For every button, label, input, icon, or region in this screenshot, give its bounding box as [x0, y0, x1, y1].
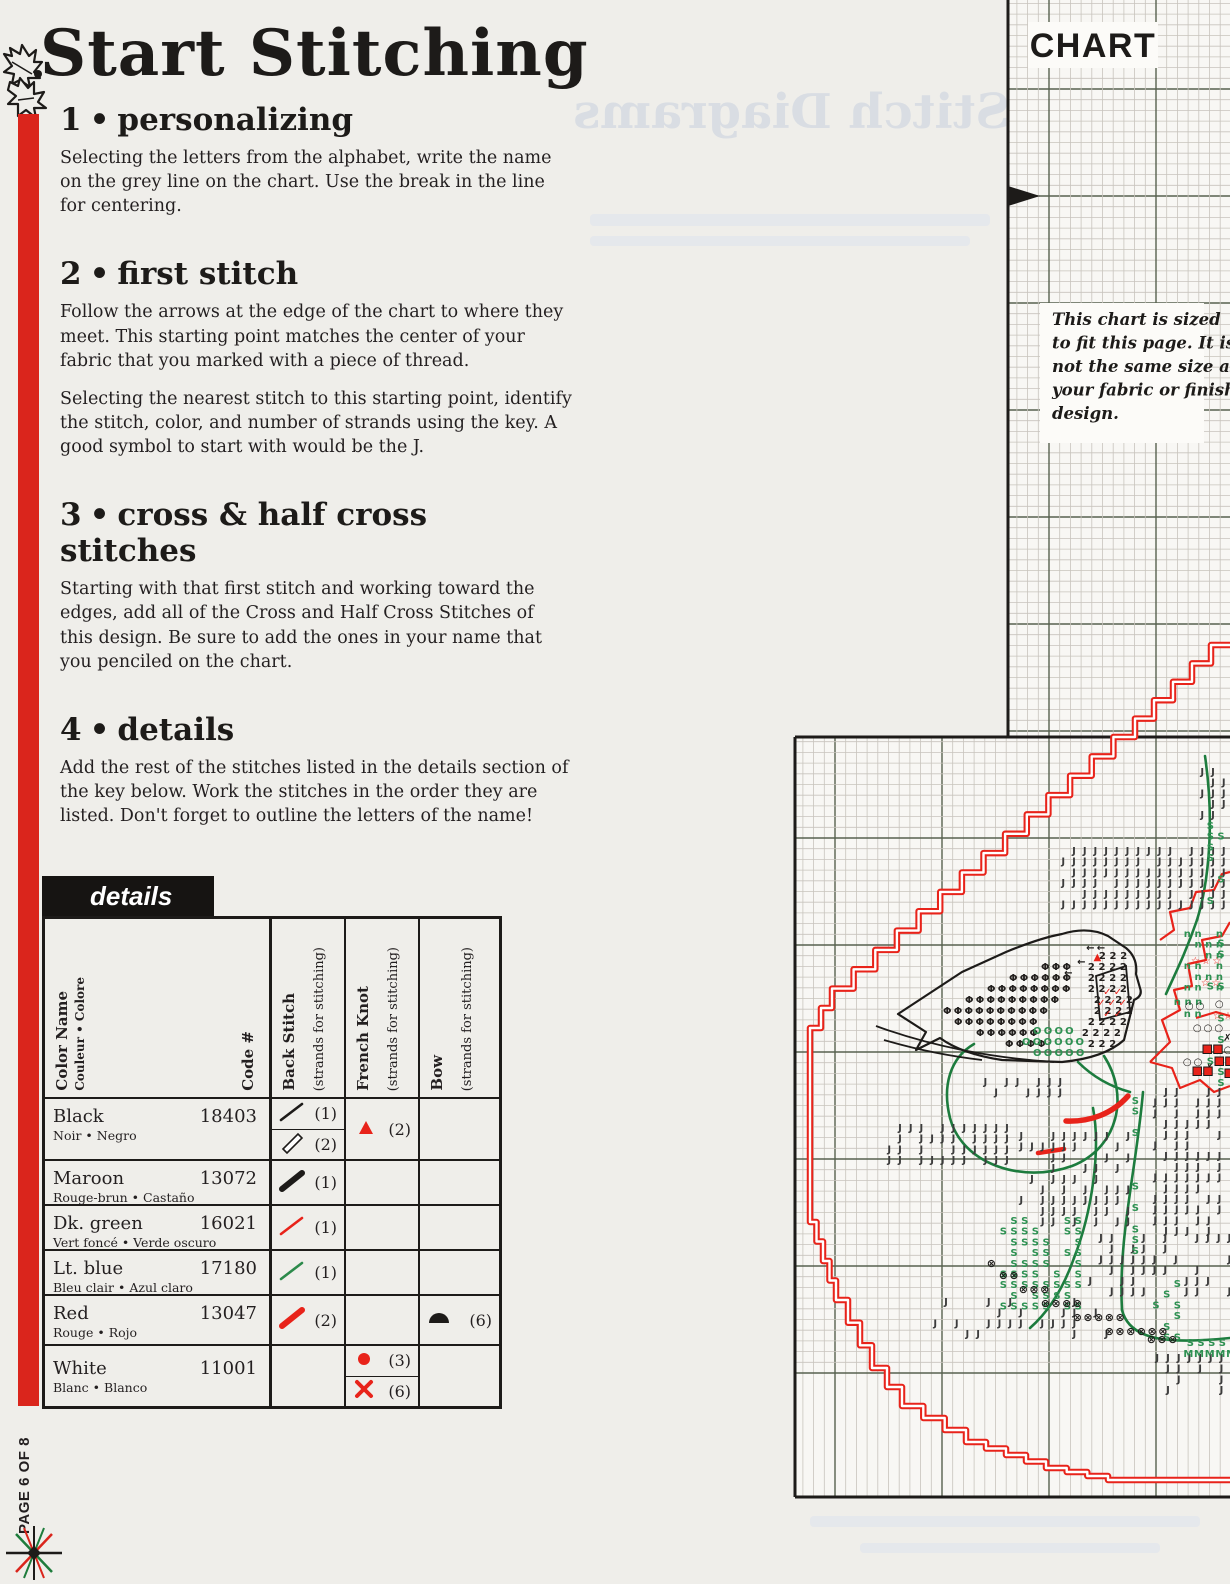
- svg-text:J: J: [1125, 857, 1130, 868]
- svg-text:J: J: [1185, 1130, 1190, 1141]
- svg-text:S: S: [1152, 1300, 1159, 1311]
- table-row-white: WhiteBlanc • Blanco11001 (3) (6): [45, 1344, 499, 1406]
- svg-text:J: J: [1114, 846, 1119, 857]
- svg-text:J: J: [1103, 900, 1108, 911]
- svg-text:S: S: [1132, 1128, 1139, 1139]
- svg-text:S: S: [1075, 1216, 1082, 1227]
- svg-text:J: J: [1167, 878, 1172, 889]
- svg-text:J: J: [1072, 1131, 1077, 1142]
- svg-text:Φ: Φ: [1019, 995, 1028, 1006]
- svg-text:J: J: [1146, 867, 1151, 878]
- svg-text:J: J: [1083, 1185, 1088, 1196]
- svg-text:J: J: [1194, 1276, 1199, 1287]
- svg-text:S: S: [1010, 1227, 1017, 1238]
- svg-text:Φ: Φ: [997, 1006, 1006, 1017]
- svg-text:J: J: [1217, 1130, 1222, 1141]
- svg-text:J: J: [1157, 867, 1162, 878]
- svg-text:○: ○: [1193, 1023, 1202, 1034]
- svg-text:☆: ☆: [1201, 978, 1210, 989]
- svg-text:J: J: [1206, 1173, 1211, 1184]
- svg-text:S: S: [1207, 832, 1214, 843]
- svg-text:✓: ✓: [1103, 1009, 1111, 1020]
- svg-text:J: J: [1195, 1162, 1200, 1173]
- svg-text:J: J: [1185, 1119, 1190, 1130]
- svg-text:J: J: [1060, 878, 1065, 889]
- svg-text:J: J: [961, 1155, 966, 1166]
- svg-text:J: J: [1047, 1077, 1052, 1088]
- svg-text:○: ○: [1185, 1001, 1194, 1012]
- svg-text:J: J: [1174, 1183, 1179, 1194]
- svg-text:J: J: [975, 1329, 980, 1340]
- svg-text:J: J: [1165, 1364, 1170, 1375]
- section-paragraph: Add the rest of the stitches listed in t…: [60, 756, 572, 828]
- svg-text:J: J: [1040, 1142, 1045, 1153]
- table-header-row: Color Name Couleur • Colore Code # Back …: [45, 919, 499, 1097]
- svg-text:J: J: [1109, 1244, 1114, 1255]
- svg-text:J: J: [1057, 1077, 1062, 1088]
- svg-text:S: S: [1064, 1227, 1071, 1238]
- svg-text:J: J: [1120, 1254, 1125, 1265]
- header-strands: (strands for stitching): [460, 947, 475, 1091]
- svg-text:J: J: [1206, 1151, 1211, 1162]
- svg-text:J: J: [1221, 889, 1226, 900]
- svg-text:S: S: [1207, 896, 1214, 907]
- svg-text:J: J: [1135, 889, 1140, 900]
- svg-text:Φ: Φ: [1040, 995, 1049, 1006]
- svg-text:J: J: [1082, 900, 1087, 911]
- svg-text:⊗: ⊗: [1168, 1333, 1177, 1346]
- header-color-name: Color Name: [53, 991, 71, 1091]
- backstitch-symbol: [276, 1100, 308, 1128]
- svg-text:○: ○: [1196, 1001, 1205, 1012]
- svg-text:J: J: [954, 1318, 959, 1329]
- svg-text:J: J: [1125, 1217, 1130, 1228]
- svg-text:J: J: [1104, 1131, 1109, 1142]
- svg-text:J: J: [1205, 1233, 1210, 1244]
- svg-text:J: J: [1217, 1205, 1222, 1216]
- svg-text:J: J: [986, 1297, 991, 1308]
- svg-text:J: J: [1152, 1194, 1157, 1205]
- svg-text:J: J: [1051, 1217, 1056, 1228]
- svg-text:Φ: Φ: [1018, 1006, 1027, 1017]
- svg-text:J: J: [1221, 799, 1226, 810]
- svg-text:☆: ☆: [1212, 978, 1221, 989]
- svg-text:S: S: [1010, 1216, 1017, 1227]
- svg-text:J: J: [1189, 878, 1194, 889]
- svg-text:J: J: [1221, 857, 1226, 868]
- svg-text:J: J: [1227, 1254, 1230, 1265]
- svg-text:J: J: [1125, 900, 1130, 911]
- svg-text:⊗: ⊗: [1157, 1333, 1166, 1346]
- svg-text:J: J: [897, 1155, 902, 1166]
- svg-text:J: J: [1199, 810, 1204, 821]
- svg-text:S: S: [1132, 1235, 1139, 1246]
- svg-text:J: J: [1061, 1152, 1066, 1163]
- svg-text:⊗: ⊗: [1040, 1283, 1049, 1296]
- svg-text:2: 2: [1120, 973, 1127, 984]
- svg-text:S: S: [1010, 1248, 1017, 1259]
- instructions: 1•personalizing Selecting the letters fr…: [60, 102, 572, 858]
- svg-text:⊗: ⊗: [1073, 1297, 1082, 1310]
- backstitch-symbol: [276, 1130, 308, 1158]
- svg-text:J: J: [919, 1144, 924, 1155]
- svg-text:✓: ✓: [1108, 998, 1116, 1009]
- svg-text:J: J: [919, 1134, 924, 1145]
- svg-text:J: J: [1163, 1119, 1168, 1130]
- svg-text:J: J: [1185, 1194, 1190, 1205]
- svg-text:J: J: [1167, 857, 1172, 868]
- svg-text:O: O: [1043, 1037, 1052, 1048]
- svg-text:J: J: [1061, 1195, 1066, 1206]
- svg-text:☆: ☆: [1191, 956, 1200, 967]
- svg-text:Φ: Φ: [976, 1028, 985, 1039]
- svg-text:J: J: [1189, 846, 1194, 857]
- svg-text:J: J: [1093, 1163, 1098, 1174]
- svg-text:O: O: [1065, 1048, 1074, 1059]
- svg-text:J: J: [1163, 1173, 1168, 1184]
- svg-text:J: J: [1040, 1217, 1045, 1228]
- svg-text:J: J: [1217, 1173, 1222, 1184]
- svg-text:J: J: [1167, 900, 1172, 911]
- svg-text:J: J: [1135, 878, 1140, 889]
- svg-text:J: J: [1051, 1163, 1056, 1174]
- page-title: Start Stitching: [40, 16, 589, 91]
- svg-text:Φ: Φ: [1007, 1006, 1016, 1017]
- svg-text:J: J: [1061, 1142, 1066, 1153]
- svg-text:S: S: [1174, 1311, 1181, 1322]
- svg-text:J: J: [1004, 1123, 1009, 1134]
- svg-text:Φ: Φ: [1052, 973, 1061, 984]
- svg-text:Φ: Φ: [998, 984, 1007, 995]
- svg-text:Φ: Φ: [1041, 973, 1050, 984]
- backstitch-symbol: [276, 1259, 308, 1287]
- svg-text:J: J: [1221, 846, 1226, 857]
- svg-text:J: J: [1185, 1226, 1190, 1237]
- svg-text:O: O: [1033, 1026, 1042, 1037]
- svg-text:J: J: [1162, 1265, 1167, 1276]
- svg-text:J: J: [1185, 1151, 1190, 1162]
- svg-text:J: J: [1093, 1174, 1098, 1185]
- svg-text:←: ←: [1077, 957, 1085, 968]
- svg-text:J: J: [1200, 889, 1205, 900]
- svg-text:J: J: [1083, 1163, 1088, 1174]
- svg-text:J: J: [1051, 1174, 1056, 1185]
- svg-text:J: J: [1098, 1233, 1103, 1244]
- svg-text:S: S: [1021, 1302, 1028, 1313]
- svg-text:✓: ✓: [1103, 987, 1111, 998]
- svg-text:J: J: [1093, 1206, 1098, 1217]
- svg-text:S: S: [1021, 1227, 1028, 1238]
- svg-text:J: J: [1174, 1205, 1179, 1216]
- header-strands: (strands for stitching): [386, 947, 401, 1091]
- svg-text:J: J: [1115, 1195, 1120, 1206]
- svg-text:J: J: [961, 1144, 966, 1155]
- svg-text:J: J: [1082, 846, 1087, 857]
- svg-text:O: O: [1022, 1037, 1031, 1048]
- svg-text:2: 2: [1099, 973, 1106, 984]
- svg-text:J: J: [1178, 878, 1183, 889]
- svg-text:J: J: [908, 1123, 913, 1134]
- svg-text:J: J: [1185, 1173, 1190, 1184]
- svg-text:⊗: ⊗: [1062, 1297, 1071, 1310]
- svg-text:Φ: Φ: [1019, 984, 1028, 995]
- svg-text:○: ○: [1215, 999, 1224, 1010]
- svg-text:O: O: [1054, 1026, 1063, 1037]
- svg-text:Φ: Φ: [1008, 995, 1017, 1006]
- svg-text:J: J: [1098, 1254, 1103, 1265]
- svg-text:J: J: [1071, 900, 1076, 911]
- svg-text:n: n: [1184, 961, 1191, 972]
- svg-text:J: J: [1157, 846, 1162, 857]
- svg-text:J: J: [886, 1144, 891, 1155]
- svg-text:J: J: [1162, 1233, 1167, 1244]
- svg-text:J: J: [1114, 900, 1119, 911]
- svg-text:J: J: [1115, 1163, 1120, 1174]
- svg-text:J: J: [1083, 1131, 1088, 1142]
- svg-text:J: J: [1120, 1276, 1125, 1287]
- svg-text:☆: ☆: [1212, 956, 1221, 967]
- svg-text:J: J: [1185, 1162, 1190, 1173]
- svg-text:☆: ☆: [1213, 1011, 1222, 1022]
- svg-text:J: J: [1093, 857, 1098, 868]
- svg-text:J: J: [993, 1123, 998, 1134]
- svg-text:○: ○: [1224, 1045, 1230, 1056]
- svg-text:J: J: [1167, 889, 1172, 900]
- svg-text:▲: ▲: [1093, 952, 1101, 963]
- svg-text:J: J: [1176, 1364, 1181, 1375]
- svg-text:Φ: Φ: [975, 1006, 984, 1017]
- svg-text:J: J: [1072, 1329, 1077, 1340]
- svg-text:S: S: [1075, 1270, 1082, 1281]
- svg-text:Φ: Φ: [987, 1028, 996, 1039]
- svg-text:J: J: [1152, 1173, 1157, 1184]
- svg-text:Φ: Φ: [965, 995, 974, 1006]
- section-first-stitch: 2•first stitch Follow the arrows at the …: [60, 256, 572, 459]
- svg-text:S: S: [1217, 1078, 1224, 1089]
- svg-text:J: J: [1072, 1195, 1077, 1206]
- svg-text:⊗: ⊗: [987, 1257, 996, 1270]
- svg-text:J: J: [1146, 846, 1151, 857]
- svg-text:J: J: [1051, 1152, 1056, 1163]
- svg-text:J: J: [1125, 878, 1130, 889]
- table-row-dk-green: Dk. greenVert foncé • Verde oscuro16021 …: [45, 1204, 499, 1249]
- svg-text:J: J: [1154, 1353, 1159, 1364]
- accent-bar: [18, 114, 39, 1406]
- svg-text:O: O: [1076, 1037, 1085, 1048]
- svg-text:J: J: [1152, 1265, 1157, 1276]
- svg-text:J: J: [1060, 857, 1065, 868]
- svg-text:✓: ✓: [1097, 998, 1105, 1009]
- svg-text:J: J: [1103, 857, 1108, 868]
- svg-text:J: J: [1093, 900, 1098, 911]
- svg-text:J: J: [1163, 1215, 1168, 1226]
- svg-text:J: J: [1206, 1119, 1211, 1130]
- svg-text:Φ: Φ: [1051, 995, 1060, 1006]
- svg-text:2: 2: [1120, 962, 1127, 973]
- svg-text:S: S: [1075, 1237, 1082, 1248]
- svg-text:S: S: [1217, 875, 1224, 886]
- svg-text:J: J: [1115, 1142, 1120, 1153]
- svg-text:J: J: [1165, 1353, 1170, 1364]
- svg-text:J: J: [1104, 1152, 1109, 1163]
- svg-text:J: J: [1195, 1119, 1200, 1130]
- svg-text:J: J: [1125, 846, 1130, 857]
- svg-text:S: S: [1053, 1280, 1060, 1291]
- svg-text:J: J: [1057, 1088, 1062, 1099]
- svg-text:J: J: [1173, 1254, 1178, 1265]
- svg-text:J: J: [1130, 1287, 1135, 1298]
- svg-text:J: J: [1051, 1142, 1056, 1153]
- svg-text:J: J: [1165, 1385, 1170, 1396]
- svg-text:J: J: [1072, 1142, 1077, 1153]
- svg-text:⊗: ⊗: [1009, 1269, 1018, 1282]
- svg-text:Φ: Φ: [1009, 973, 1018, 984]
- svg-text:n: n: [1216, 929, 1223, 940]
- svg-text:J: J: [1141, 1287, 1146, 1298]
- svg-text:J: J: [1163, 1194, 1168, 1205]
- svg-text:J: J: [1015, 1077, 1020, 1088]
- svg-text:Φ: Φ: [986, 995, 995, 1006]
- svg-text:J: J: [1200, 900, 1205, 911]
- svg-text:M: M: [1215, 1349, 1225, 1360]
- svg-text:J: J: [1197, 1364, 1202, 1375]
- svg-text:J: J: [1210, 867, 1215, 878]
- svg-text:S: S: [1132, 1246, 1139, 1257]
- svg-text:J: J: [897, 1123, 902, 1134]
- svg-text:S: S: [1021, 1259, 1028, 1270]
- backstitch-symbol: [276, 1214, 308, 1242]
- svg-text:S: S: [1219, 1338, 1226, 1349]
- svg-text:☆: ☆: [1224, 1011, 1230, 1022]
- svg-text:J: J: [1174, 1162, 1179, 1173]
- svg-text:J: J: [1189, 900, 1194, 911]
- svg-text:J: J: [1125, 1206, 1130, 1217]
- svg-text:Φ: Φ: [975, 1017, 984, 1028]
- section-details: 4•details Add the rest of the stitches l…: [60, 712, 572, 828]
- svg-text:Φ: Φ: [1008, 1017, 1017, 1028]
- svg-text:J: J: [1189, 889, 1194, 900]
- svg-text:S: S: [1174, 1300, 1181, 1311]
- svg-text:S: S: [1032, 1227, 1039, 1238]
- svg-text:S: S: [1000, 1302, 1007, 1313]
- svg-text:S: S: [1021, 1216, 1028, 1227]
- svg-text:J: J: [1185, 1183, 1190, 1194]
- svg-text:2: 2: [1088, 1017, 1095, 1028]
- svg-text:J: J: [1115, 1185, 1120, 1196]
- section-heading: 4•details: [60, 712, 572, 748]
- svg-text:J: J: [1051, 1206, 1056, 1217]
- svg-text:J: J: [1071, 857, 1076, 868]
- svg-text:J: J: [1221, 900, 1226, 911]
- svg-text:J: J: [1195, 1183, 1200, 1194]
- svg-text:⊗: ⊗: [1019, 1283, 1028, 1296]
- svg-text:J: J: [1178, 900, 1183, 911]
- svg-text:J: J: [1219, 1374, 1224, 1385]
- svg-text:S: S: [1207, 842, 1214, 853]
- svg-text:M: M: [1194, 1349, 1204, 1360]
- svg-text:J: J: [1184, 1276, 1189, 1287]
- svg-text:J: J: [1093, 1195, 1098, 1206]
- page-indicator: PAGE 6 OF 8: [16, 1412, 40, 1534]
- svg-text:J: J: [1125, 889, 1130, 900]
- svg-text:J: J: [1093, 867, 1098, 878]
- svg-text:S: S: [1075, 1248, 1082, 1259]
- svg-text:J: J: [1206, 1087, 1211, 1098]
- svg-text:M: M: [1205, 1349, 1215, 1360]
- svg-text:J: J: [1157, 878, 1162, 889]
- svg-text:J: J: [951, 1123, 956, 1134]
- svg-text:J: J: [1004, 1155, 1009, 1166]
- svg-text:J: J: [1004, 1144, 1009, 1155]
- svg-text:2: 2: [1109, 962, 1116, 973]
- svg-text:S: S: [1032, 1248, 1039, 1259]
- svg-text:J: J: [1217, 1098, 1222, 1109]
- svg-text:J: J: [1174, 1130, 1179, 1141]
- svg-text:J: J: [932, 1318, 937, 1329]
- svg-text:J: J: [983, 1144, 988, 1155]
- svg-text:J: J: [1205, 1276, 1210, 1287]
- svg-text:S: S: [1132, 1203, 1139, 1214]
- svg-text:2: 2: [1110, 951, 1117, 962]
- svg-text:☆: ☆: [1202, 956, 1211, 967]
- section-paragraph: Selecting the letters from the alphabet,…: [60, 146, 572, 218]
- table-row-maroon: MaroonRouge-brun • Castaño13072 (1): [45, 1159, 499, 1204]
- svg-text:J: J: [1103, 889, 1108, 900]
- svg-text:J: J: [1152, 1254, 1157, 1265]
- section-cross-stitches: 3•cross & half cross stitches Starting w…: [60, 497, 572, 674]
- svg-text:J: J: [1061, 1318, 1066, 1329]
- svg-text:⊗: ⊗: [1115, 1311, 1124, 1324]
- svg-text:S: S: [1132, 1096, 1139, 1107]
- svg-text:J: J: [1125, 1185, 1130, 1196]
- svg-text:2: 2: [1109, 973, 1116, 984]
- svg-text:J: J: [1007, 1318, 1012, 1329]
- svg-text:J: J: [1109, 1287, 1114, 1298]
- svg-text:Φ: Φ: [965, 1017, 974, 1028]
- svg-text:J: J: [940, 1155, 945, 1166]
- svg-text:J: J: [1206, 1215, 1211, 1226]
- svg-text:⊗: ⊗: [1051, 1297, 1060, 1310]
- svg-text:Φ: Φ: [1029, 1006, 1038, 1017]
- header-french-knot: French Knot: [354, 986, 372, 1091]
- svg-text:2: 2: [1093, 1028, 1100, 1039]
- svg-text:J: J: [1093, 889, 1098, 900]
- svg-text:J: J: [1114, 889, 1119, 900]
- section-heading: 2•first stitch: [60, 256, 572, 292]
- svg-text:J: J: [1227, 1287, 1230, 1298]
- svg-text:Φ: Φ: [1041, 962, 1050, 973]
- svg-text:J: J: [1036, 1077, 1041, 1088]
- svg-text:J: J: [886, 1155, 891, 1166]
- svg-text:O: O: [1065, 1026, 1074, 1037]
- svg-text:Φ: Φ: [1018, 1017, 1027, 1028]
- svg-text:J: J: [1146, 900, 1151, 911]
- svg-text:S: S: [1032, 1259, 1039, 1270]
- svg-text:J: J: [1217, 1194, 1222, 1205]
- svg-text:J: J: [1227, 1233, 1230, 1244]
- svg-text:←: ←: [1064, 968, 1072, 979]
- svg-text:J: J: [1051, 1195, 1056, 1206]
- svg-text:J: J: [1114, 857, 1119, 868]
- svg-text:J: J: [929, 1155, 934, 1166]
- svg-text:S: S: [1042, 1259, 1049, 1270]
- svg-text:J: J: [1135, 900, 1140, 911]
- svg-text:Φ: Φ: [1039, 1006, 1048, 1017]
- svg-text:O: O: [1054, 1048, 1063, 1059]
- svg-text:2: 2: [1099, 1039, 1106, 1050]
- svg-text:S: S: [1000, 1227, 1007, 1238]
- svg-text:n: n: [1194, 929, 1201, 940]
